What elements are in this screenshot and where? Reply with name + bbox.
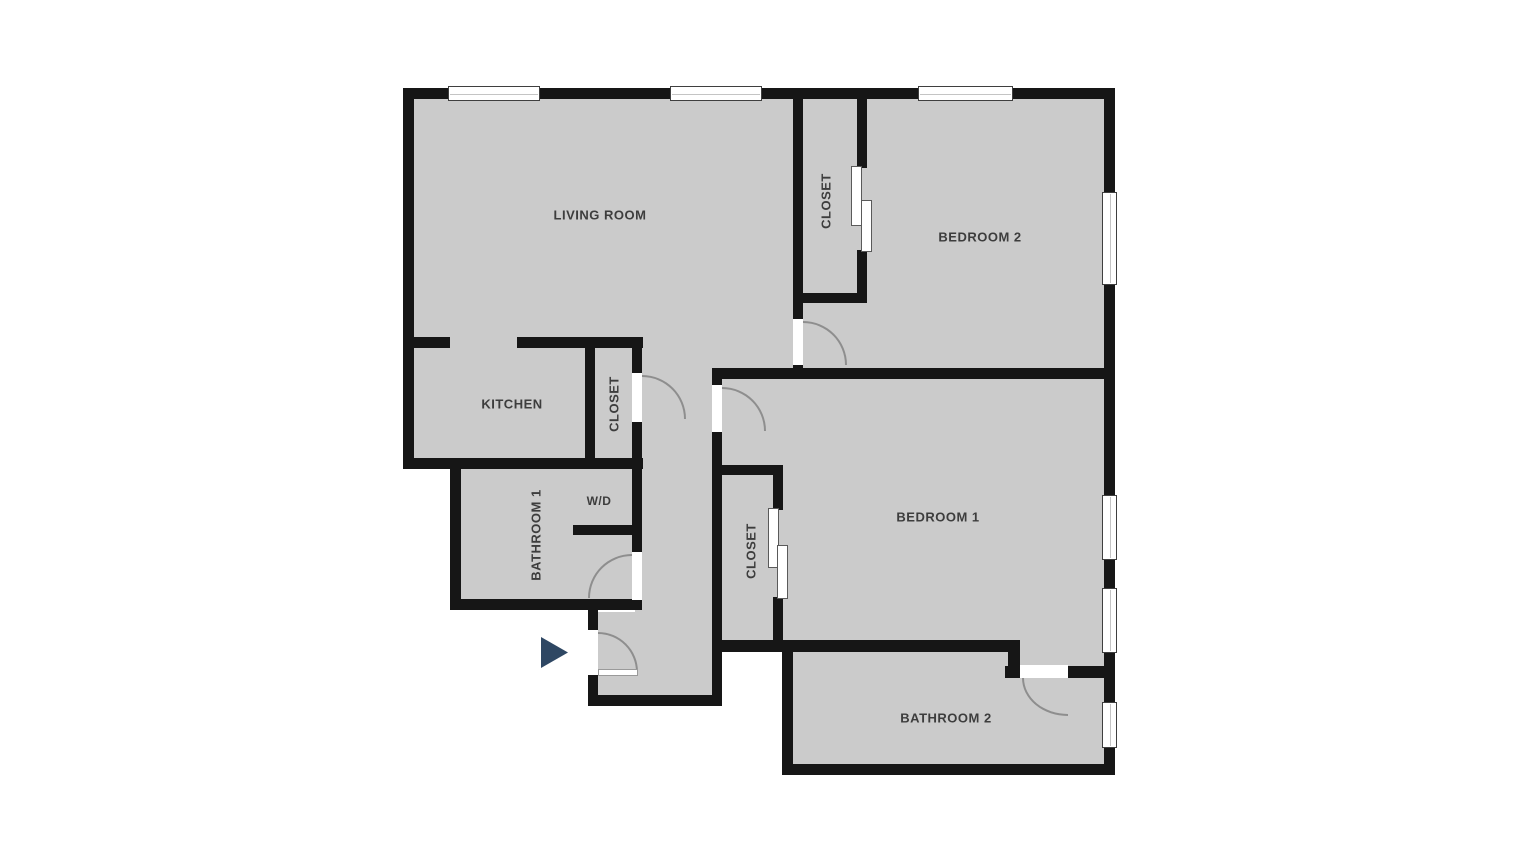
room-label-bedroom-2: BEDROOM 2 (938, 230, 1021, 245)
wall-bedroom-1-closet-right-lower (773, 597, 783, 645)
wall-bedroom-2-closet-right-lower (857, 250, 867, 303)
window-bedroom-2-top (918, 86, 1013, 101)
wall-hallway-left-c (632, 600, 642, 610)
room-label-bathroom-2: BATHROOM 2 (900, 711, 991, 726)
door-gap-kitchen-closet (632, 373, 642, 422)
sliding-door-bedroom-1-closet-panel-b (777, 545, 788, 599)
wall-kitchen-top (517, 337, 643, 348)
door-gap-entry (588, 630, 598, 675)
wall-hallway-right-b (712, 432, 722, 706)
room-label-kitchen: KITCHEN (481, 397, 542, 412)
wall-bedroom-1-closet-top (712, 465, 783, 475)
room-label-kitchen-closet: CLOSET (607, 376, 622, 432)
wall-bedroom-divider (712, 368, 1115, 379)
door-gap-bathroom-2 (1020, 665, 1068, 678)
wall-hallway-right-a (712, 368, 722, 385)
wall-hallway-bottom (588, 695, 722, 706)
wall-bedroom-2-closet-bottom (793, 293, 867, 303)
window-bedroom-1-upper (1102, 495, 1117, 560)
room-label-bedroom-2-closet: CLOSET (819, 173, 834, 229)
window-living-room-2 (670, 86, 762, 101)
wall-bedroom-1-bottom (712, 640, 1010, 652)
entry-arrow-icon (541, 637, 568, 668)
window-living-room-1 (448, 86, 540, 101)
wall-hallway-left-a (632, 340, 642, 373)
floor-plan: LIVING ROOM KITCHEN CLOSET BATHROOM 1 W/… (0, 0, 1520, 855)
wall-bathroom-2-step (1008, 640, 1020, 678)
door-gap-bathroom-1 (632, 552, 642, 600)
door-leaf-entry (598, 669, 638, 676)
door-gap-bedroom-1 (712, 385, 722, 432)
wall-living-bedroom2-lower (793, 365, 803, 379)
room-label-bathroom-1: BATHROOM 1 (529, 489, 544, 580)
wall-bathroom-1-bottom (450, 599, 642, 610)
wall-left (403, 88, 414, 469)
room-label-living-room: LIVING ROOM (554, 208, 647, 223)
wall-bathroom-2-left (782, 643, 793, 775)
room-label-bedroom-1: BEDROOM 1 (896, 510, 979, 525)
room-label-bedroom-1-closet: CLOSET (744, 523, 759, 579)
door-gap-bedroom-2 (793, 319, 803, 365)
wall-entry-lower (588, 675, 598, 706)
wall-hallway-left-b (632, 422, 642, 552)
wall-bedroom-1-closet-right-upper (773, 475, 783, 510)
window-bathroom-2 (1102, 702, 1117, 748)
wall-living-bedroom2-upper (793, 93, 803, 319)
wall-bathroom-1-left (450, 458, 461, 610)
window-bedroom-2-right (1102, 192, 1117, 285)
sliding-door-bedroom-2-closet-panel-b (861, 200, 872, 252)
room-label-washer-dryer: W/D (587, 494, 612, 508)
wall-entry-upper (588, 608, 598, 630)
wall-kitchen-closet-divider (585, 340, 595, 465)
wall-bedroom-2-closet-right-upper (857, 93, 867, 168)
wall-kitchen-bottom (403, 458, 643, 469)
floor-living-room (403, 93, 803, 355)
window-bedroom-1-lower (1102, 588, 1117, 653)
wall-bathroom-2-bottom (782, 764, 1115, 775)
